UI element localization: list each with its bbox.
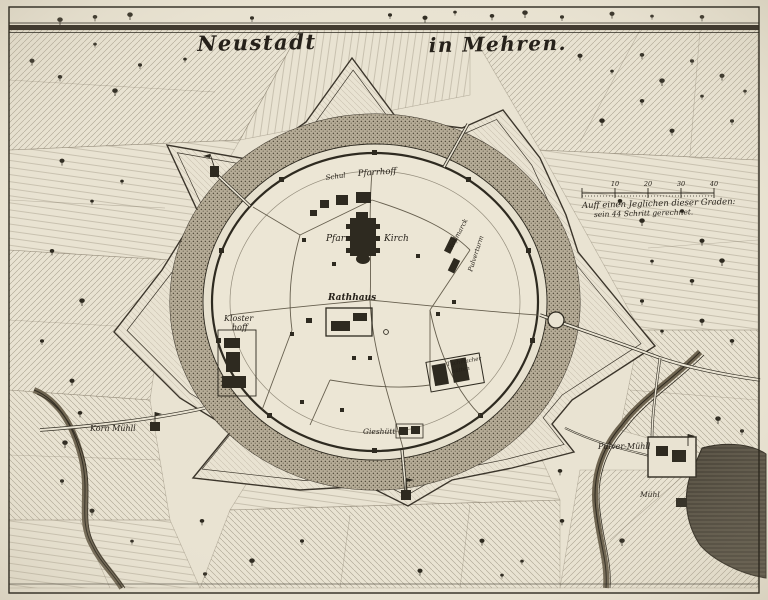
label-muehl: Mühl: [639, 490, 660, 499]
label-pulver-muehl: Pulver-Mühll: [597, 442, 651, 451]
engraved-map: 10 20 30 40 Auff einen Jeglichen dieser …: [0, 0, 768, 600]
title-left: Neustadt: [196, 29, 317, 56]
label-giesshuett: Gieshütt: [363, 427, 396, 436]
label-kirch: Kirch: [383, 234, 409, 244]
east-gate-roundel: [548, 312, 564, 328]
title-right: in Mehren.: [429, 31, 568, 57]
scale-tick-30: 30: [677, 180, 685, 188]
label-korn-muehl: Korn Mühll: [89, 424, 136, 433]
pfarrhoff-building: [356, 192, 371, 203]
pulver-muehl-building: [648, 434, 696, 477]
scale-tick-20: 20: [643, 180, 652, 188]
schul-building: [310, 210, 317, 216]
label-kloster-2: hoff: [232, 323, 249, 332]
label-rathhaus: Rathhaus: [327, 293, 376, 303]
label-kloster-1: Kloster: [223, 314, 254, 323]
scale-tick-10: 10: [611, 180, 619, 188]
muehl-building: [676, 498, 687, 507]
scale-tick-40: 40: [709, 180, 718, 188]
engraved-map-plate: 10 20 30 40 Auff einen Jeglichen dieser …: [0, 0, 768, 600]
label-pfarr: Pfarr: [325, 234, 350, 244]
